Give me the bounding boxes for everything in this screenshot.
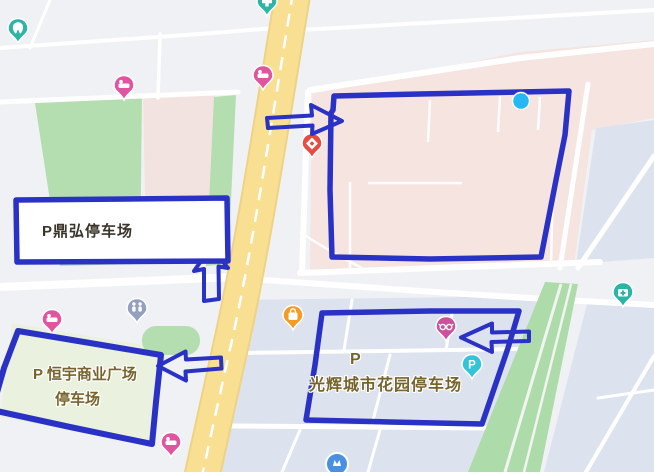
location-dot [513, 93, 530, 110]
area-label-guanghui-parking-p: P [350, 351, 361, 369]
map-canvas[interactable]: P 佳荣诊所 一心堂药店 金水温泉酒店 铭春连锁酒店 昆明市儿童医 院南市区医院… [0, 0, 654, 472]
ink-arrow-left-guanghui [461, 324, 529, 353]
annotation-label-hengyu-l2: 停车场 [55, 391, 100, 408]
annotation-label-hengyu-l1: P 恒宇商业广场 [33, 366, 137, 383]
ink-rect-hospital [330, 91, 569, 259]
area-label-guanghui-parking-name: 光辉城市花园停车场 [309, 377, 462, 395]
ink-arrow-left-hengyu [158, 352, 222, 381]
ink-quad-hengyu [0, 331, 161, 444]
ink-rect-guanghui [306, 311, 519, 424]
annotation-label-dinghong-parking: P鼎弘停车场 [42, 223, 133, 240]
